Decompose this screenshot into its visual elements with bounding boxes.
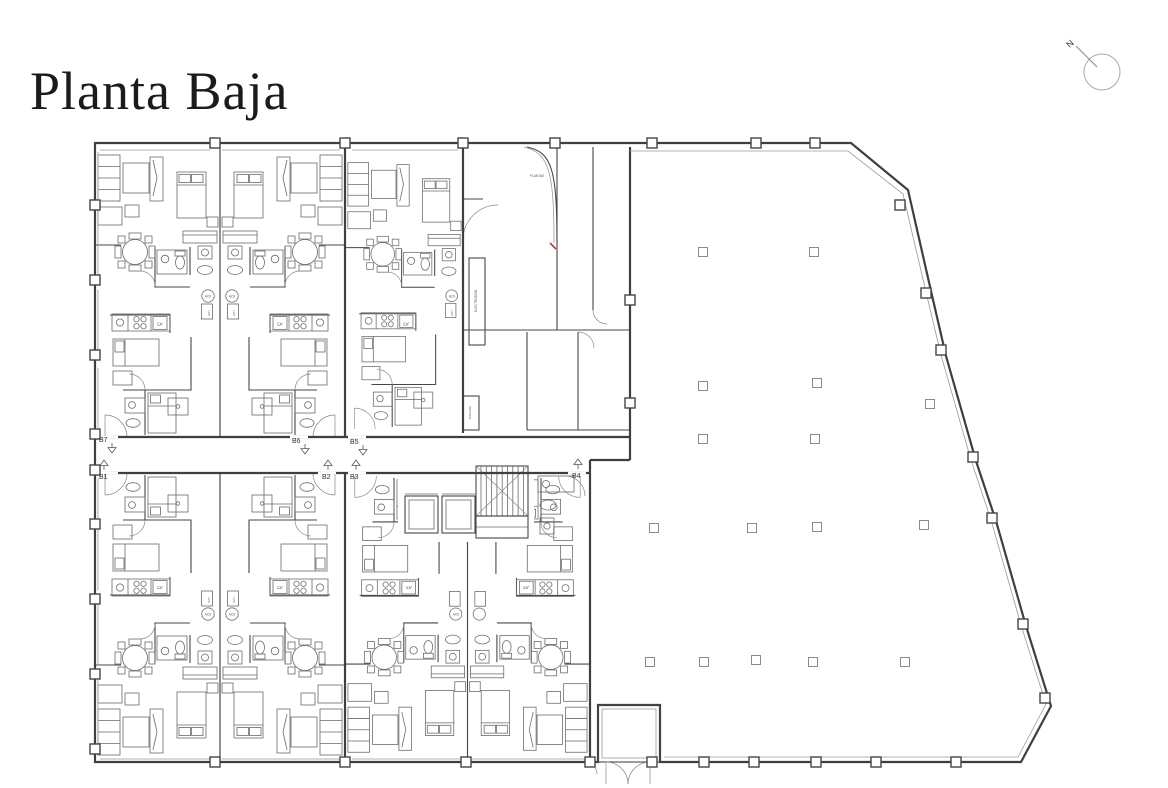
- dishwasher-label: LV: [157, 585, 163, 590]
- dishwasher-label: LV: [523, 585, 529, 590]
- utilities-shaft: ELECTRODOM: [469, 258, 485, 345]
- telecom-shaft-label: TELECOM: [468, 406, 472, 420]
- unit-label-b6: B6: [292, 438, 301, 445]
- unit-label-b7: B7: [99, 437, 108, 444]
- dishwasher-label: LV: [157, 322, 163, 327]
- washer-label: LVD: [232, 310, 236, 315]
- utilities-shaft-label: ELECTRODOM: [474, 289, 478, 312]
- entrance-vestibule: [585, 705, 660, 784]
- entrance-core: ELECTRODOM TELECOM PLANTAS: [463, 147, 630, 430]
- dishwasher-label: LV: [406, 585, 412, 590]
- block-top-left: [95, 147, 345, 437]
- washer-label: LVD: [450, 310, 454, 315]
- column-grid: [646, 248, 935, 667]
- water-heater-label: ACS: [449, 295, 456, 299]
- walls-layer: [95, 143, 1051, 762]
- water-heater-label: ACS: [453, 613, 460, 617]
- telecom-shaft: TELECOM: [463, 396, 479, 430]
- block-top-middle: [345, 155, 463, 429]
- stair-room-label: PLANTAS: [530, 174, 544, 178]
- dishwasher-label: LV: [277, 322, 283, 327]
- north-compass: N: [1064, 38, 1120, 90]
- unit-label-b2: B2: [322, 474, 331, 481]
- unit-label-b1: B1: [99, 474, 108, 481]
- washer-label: LVD: [207, 597, 211, 602]
- block-bottom-left: [95, 473, 345, 763]
- unit-label-b4: B4: [572, 473, 581, 480]
- washer-label: LVD: [207, 310, 211, 315]
- water-heater-label: ACS: [229, 613, 236, 617]
- unit-label-b5: B5: [350, 439, 359, 446]
- appliance-labels: LV LV LV LV LV LV LV ACS ACS ACS ACS ACS…: [157, 295, 529, 617]
- unit-b4-bath: [538, 476, 585, 534]
- dishwasher-label: LV: [403, 322, 409, 327]
- washer-label: LVD: [232, 597, 236, 602]
- water-heater-label: ACS: [205, 295, 212, 299]
- compass-north-label: N: [1064, 38, 1076, 50]
- wall-piers: [90, 138, 1050, 767]
- water-heater-label: ACS: [229, 295, 236, 299]
- windows-layer: [98, 150, 585, 759]
- dishwasher-label: LV: [277, 585, 283, 590]
- water-heater-label: ACS: [205, 613, 212, 617]
- unit-label-b3: B3: [350, 474, 359, 481]
- floor-plan-canvas: ELECTRODOM TELECOM PLANTAS: [0, 0, 1168, 788]
